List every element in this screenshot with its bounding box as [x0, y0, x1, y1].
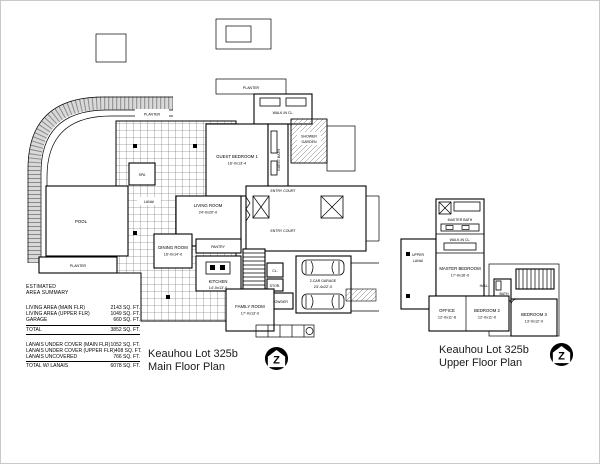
upper-floor-plan-drawing: UPPER LANAI MASTER BATH WALK-IN CL. — [394, 184, 584, 344]
summary-heading-line2: AREA SUMMARY — [26, 290, 140, 296]
column-post — [193, 144, 197, 148]
entry-court-label-lower: ENTRY COURT — [270, 229, 296, 233]
column-post — [133, 144, 137, 148]
guest-bedroom-dims: 16'-0x13'-4 — [228, 162, 247, 166]
stairs — [243, 249, 265, 289]
room-guest-bath: GUEST BATH — [268, 124, 288, 196]
gate-column — [321, 196, 343, 218]
summary-total-row: TOTAL 3852 SQ. FT. — [26, 327, 140, 333]
column-post — [166, 295, 170, 299]
upper-plan-title: Keauhou Lot 325b Upper Floor Plan — [439, 344, 529, 369]
bedroom2-label: BEDROOM 2 — [474, 308, 500, 313]
zillow-z-glyph: Z — [273, 355, 280, 367]
zillow-north-icon: Z — [549, 342, 574, 367]
roof-structure — [216, 19, 271, 49]
bedroom3-dims: 13'-0x12'-0 — [525, 320, 544, 324]
room-dining-room: DINING ROOM 16'-0x14'-0 — [154, 234, 192, 268]
summary-grand-total-row: TOTAL W/ LANAIS 6078 SQ. FT. — [26, 363, 140, 369]
shower-garden: SHOWER GARDEN — [291, 119, 355, 171]
garage-label: 2-CAR GARAGE — [310, 279, 337, 283]
stairs-upper — [516, 269, 554, 289]
room-kitchen: PANTRY KITCHEN 14'-0x13'-0 — [196, 239, 241, 291]
column-post — [406, 252, 410, 256]
summary-row-value: 3852 SQ. FT. — [111, 327, 140, 333]
car — [302, 260, 344, 275]
powder-label: POWDER — [272, 300, 288, 304]
lower-wing: OFFICE 12'-0x11'-6 BEDROOM 2 12'-0x11'-0 — [429, 296, 509, 331]
column-post — [406, 294, 410, 298]
living-room-label: LIVING ROOM — [194, 203, 223, 208]
room-garage: 2-CAR GARAGE 23'-4x22'-0 — [296, 256, 351, 313]
summary-row-value: 766 SQ. FT. — [113, 354, 140, 360]
upper-lanai-label-1: UPPER — [412, 253, 425, 257]
summary-divider — [26, 361, 140, 362]
walk-in-closet-upper-label: WALK-IN CL. — [450, 238, 471, 242]
zillow-north-icon: Z — [264, 346, 289, 371]
main-plan-title-line2: Main Floor Plan — [148, 361, 238, 374]
garage-dims: 23'-4x22'-0 — [314, 285, 333, 289]
summary-row-label: TOTAL — [26, 327, 42, 333]
storage-label: STOR. — [270, 284, 281, 288]
pantry-label: PANTRY — [211, 245, 226, 249]
guest-bath-label: GUEST BATH — [277, 149, 281, 172]
spa: SPA — [129, 163, 155, 185]
dining-room-dims: 16'-0x14'-0 — [164, 253, 183, 257]
zillow-z-glyph: Z — [558, 351, 565, 363]
planter-label: PLANTER — [243, 86, 260, 90]
room-closet: CL. — [267, 263, 283, 277]
guest-bedroom-label: GUEST BEDROOM 1 — [216, 154, 258, 159]
shower-garden-label-1: SHOWER — [301, 135, 317, 139]
bedroom2-dims: 12'-0x11'-0 — [478, 316, 496, 320]
summary-divider — [26, 334, 140, 335]
entry-court: ENTRY COURT ENTRY COURT — [246, 186, 379, 251]
summary-row: GARAGE 660 SQ. FT. — [26, 317, 140, 323]
upper-plan-title-line2: Upper Floor Plan — [439, 357, 529, 370]
kitchen-dims: 14'-0x13'-0 — [209, 286, 228, 290]
kitchen-label: KITCHEN — [209, 279, 228, 284]
office-label: OFFICE — [439, 308, 455, 313]
spa-label: SPA — [139, 173, 146, 177]
walk-in-closet-label: WALK-IN CL. — [273, 111, 294, 115]
bath-label: BATH — [499, 292, 509, 296]
summary-row-label: GARAGE — [26, 317, 47, 323]
family-room-label: FAMILY ROOM — [235, 304, 265, 309]
living-room-dims: 24'-0x20'-0 — [199, 211, 218, 215]
hall-label: HALL — [480, 284, 489, 288]
summary-row-label: TOTAL W/ LANAIS — [26, 363, 68, 369]
family-room-dims: 17'-0x13'-0 — [241, 312, 260, 316]
upper-lanai-label-2: LANAI — [413, 259, 423, 263]
lanai-label: LANAI — [144, 200, 154, 204]
floorplan-sheet: LANAI PLANTER PLANTER PLANTER POOL SPA W… — [0, 0, 600, 464]
closet-label: CL. — [272, 269, 277, 273]
room-guest-bedroom: GUEST BEDROOM 1 16'-0x13'-4 — [206, 124, 268, 196]
car — [302, 294, 344, 309]
planter-label: PLANTER — [70, 264, 87, 268]
summary-divider — [26, 325, 140, 326]
master-suite: MASTER BATH WALK-IN CL. MASTER BEDROOM 1… — [436, 199, 484, 296]
room-bedroom-3: BEDROOM 3 13'-0x12'-0 — [511, 299, 557, 336]
upper-plan-title-line1: Keauhou Lot 325b — [439, 344, 529, 357]
gate-column — [253, 196, 269, 218]
roof-box — [96, 34, 126, 62]
master-bath-label: MASTER BATH — [448, 218, 473, 222]
shower-garden-label-2: GARDEN — [302, 140, 317, 144]
pool-label: POOL — [75, 219, 88, 224]
summary-row-label: LANAIS UNCOVERED — [26, 354, 77, 360]
entry-court-label-upper: ENTRY COURT — [270, 189, 296, 193]
pool: POOL — [46, 186, 128, 256]
master-bedroom-label: MASTER BEDROOM — [439, 266, 481, 271]
bedroom3-label: BEDROOM 3 — [521, 312, 547, 317]
master-bedroom-dims: 17'-0x16'-0 — [451, 274, 470, 278]
dining-room-label: DINING ROOM — [158, 245, 188, 250]
planter-label: PLANTER — [144, 113, 161, 117]
main-plan-title: Keauhou Lot 325b Main Floor Plan — [148, 348, 238, 373]
main-plan-title-line1: Keauhou Lot 325b — [148, 348, 238, 361]
column-post — [133, 231, 137, 235]
summary-row: LANAIS UNCOVERED 766 SQ. FT. — [26, 354, 140, 360]
office-dims: 12'-0x11'-6 — [438, 316, 456, 320]
summary-row-value: 6078 SQ. FT. — [111, 363, 140, 369]
area-summary: ESTIMATED AREA SUMMARY LIVING AREA (MAIN… — [26, 284, 140, 370]
summary-row-value: 660 SQ. FT. — [113, 317, 140, 323]
